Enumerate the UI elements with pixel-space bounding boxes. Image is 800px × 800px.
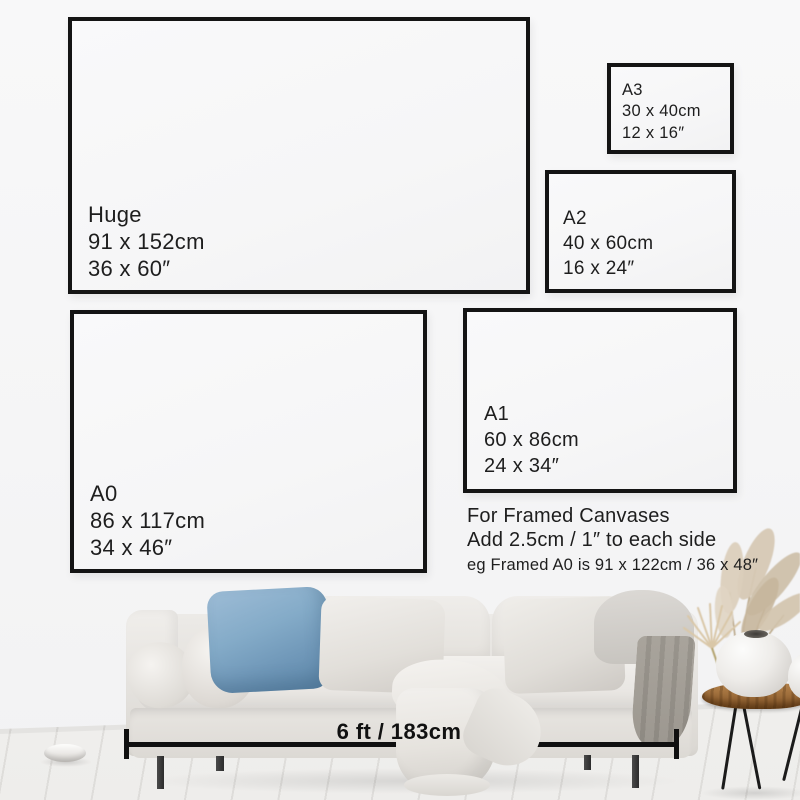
size-name: A1 [484,401,579,427]
measurement-end-cap-right [674,729,679,759]
size-cm: 40 x 60cm [563,231,653,256]
throw-blanket-center-floor-pile [404,774,490,796]
size-inches: 16 x 24″ [563,256,653,281]
size-box-a2: A2 40 x 60cm 16 x 24″ [545,170,736,293]
size-cm: 86 x 117cm [90,507,205,534]
vase-opening [744,630,768,638]
size-cm: 91 x 152cm [88,228,205,255]
size-inches: 24 x 34″ [484,453,579,479]
size-box-a0: A0 86 x 117cm 34 x 46″ [70,310,427,573]
sofa-leg [216,756,224,771]
framed-canvas-note: For Framed Canvases Add 2.5cm / 1″ to ea… [467,504,758,577]
size-name: A3 [622,80,701,102]
pillow-blue [206,586,331,694]
size-guide-scene: Huge 91 x 152cm 36 x 60″ A3 30 x 40cm 12… [0,0,800,800]
measurement-label: 6 ft / 183cm [289,719,509,745]
size-inches: 12 x 16″ [622,123,701,145]
sofa-leg [157,756,164,789]
size-label-a1: A1 60 x 86cm 24 x 34″ [484,401,579,479]
size-box-huge: Huge 91 x 152cm 36 x 60″ [68,17,530,294]
framed-note-line1: Add 2.5cm / 1″ to each side [467,528,758,553]
size-name: A0 [90,480,205,507]
size-box-a1: A1 60 x 86cm 24 x 34″ [463,308,737,493]
size-cm: 60 x 86cm [484,427,579,453]
framed-note-line2: eg Framed A0 is 91 x 122cm / 36 x 48″ [467,553,758,577]
size-name: A2 [563,206,653,231]
sofa-leg [584,755,591,770]
size-inches: 34 x 46″ [90,534,205,561]
sofa-leg [632,755,639,788]
size-label-a0: A0 86 x 117cm 34 x 46″ [90,480,205,561]
size-name: Huge [88,201,205,228]
size-box-a3: A3 30 x 40cm 12 x 16″ [607,63,734,154]
size-cm: 30 x 40cm [622,101,701,123]
size-inches: 36 x 60″ [88,255,205,282]
table-floor-shadow [700,786,800,800]
size-label-a3: A3 30 x 40cm 12 x 16″ [622,80,701,145]
size-label-huge: Huge 91 x 152cm 36 x 60″ [88,201,205,282]
floor-bowl [44,744,86,762]
framed-note-title: For Framed Canvases [467,504,758,528]
measurement-end-cap-left [124,729,129,759]
size-label-a2: A2 40 x 60cm 16 x 24″ [563,206,653,281]
round-vase-large [716,631,792,697]
